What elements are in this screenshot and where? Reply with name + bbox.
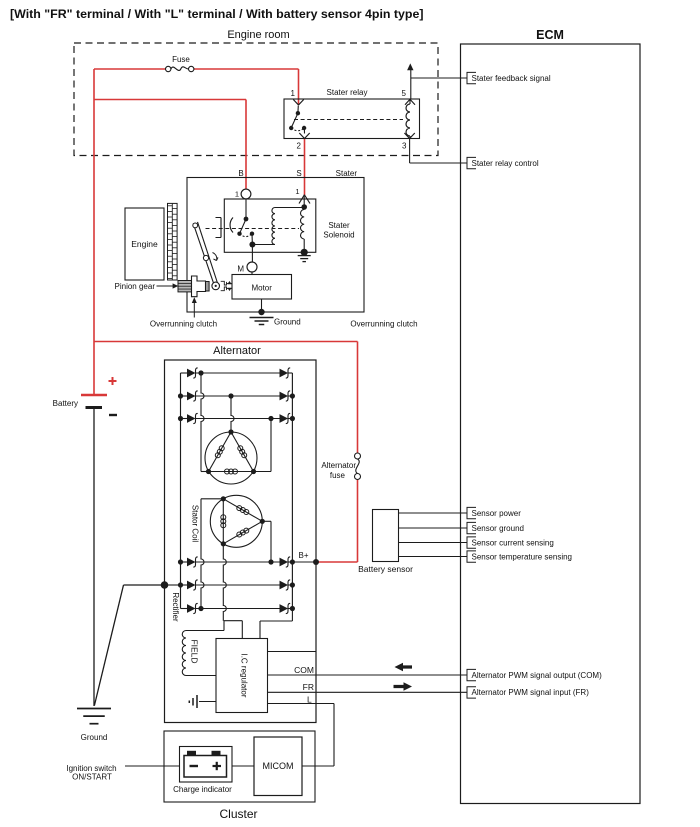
svg-text:3: 3 [402,142,407,151]
svg-text:Ground: Ground [81,733,108,742]
svg-text:MICOM: MICOM [263,761,294,771]
svg-text:FR: FR [303,682,314,692]
svg-text:Motor: Motor [251,284,272,293]
svg-text:Stater relay: Stater relay [327,88,368,97]
svg-text:Overrunning clutch: Overrunning clutch [150,320,217,329]
svg-text:Alternator: Alternator [321,461,356,470]
svg-text:Engine: Engine [131,239,158,249]
svg-text:Battery: Battery [53,399,78,408]
svg-text:Sensor ground: Sensor ground [472,524,524,533]
svg-text:Stater: Stater [328,221,350,230]
svg-text:Cluster: Cluster [219,807,257,821]
svg-text:B+: B+ [299,551,309,560]
svg-text:Stater: Stater [336,169,358,178]
svg-text:Overrunning clutch: Overrunning clutch [350,320,417,329]
svg-text:Stater relay control: Stater relay control [472,159,539,168]
svg-text:Engine room: Engine room [227,29,289,41]
svg-text:1: 1 [235,190,239,199]
svg-text:Sensor power: Sensor power [472,509,522,518]
svg-text:Alternator: Alternator [213,345,261,357]
svg-text:Charge indicator: Charge indicator [173,785,232,794]
svg-text:2: 2 [297,142,302,151]
svg-text:Fuse: Fuse [172,55,190,64]
svg-text:Battery sensor: Battery sensor [358,564,413,574]
svg-text:Stator Coil: Stator Coil [191,505,200,543]
svg-text:B: B [238,169,243,178]
svg-text:5: 5 [402,89,407,98]
svg-text:Alternator PWM signal output (: Alternator PWM signal output (COM) [472,671,603,680]
svg-text:Solenoid: Solenoid [323,231,354,240]
svg-text:Alternator PWM signal input (F: Alternator PWM signal input (FR) [472,688,590,697]
svg-text:1: 1 [291,89,296,98]
svg-text:Sensor temperature sensing: Sensor temperature sensing [472,552,573,561]
svg-text:M: M [237,265,244,274]
svg-text:L: L [307,695,312,705]
svg-text:I.C regulator: I.C regulator [240,653,249,697]
svg-text:ECM: ECM [536,28,564,42]
svg-text:Stater feedback signal: Stater feedback signal [472,74,551,83]
svg-text:[With "FR" terminal / With "L": [With "FR" terminal / With "L" terminal … [10,7,424,21]
svg-text:Ground: Ground [274,318,301,327]
svg-text:ON/START: ON/START [72,773,112,782]
svg-text:fuse: fuse [330,471,346,480]
svg-text:Sensor current sensing: Sensor current sensing [472,538,554,547]
svg-text:Pinion gear: Pinion gear [115,282,156,291]
svg-text:Rectifier: Rectifier [171,592,180,622]
svg-text:COM: COM [294,665,314,675]
svg-text:FIELD: FIELD [190,639,200,663]
svg-text:S: S [296,169,301,178]
svg-text:1: 1 [295,187,299,196]
